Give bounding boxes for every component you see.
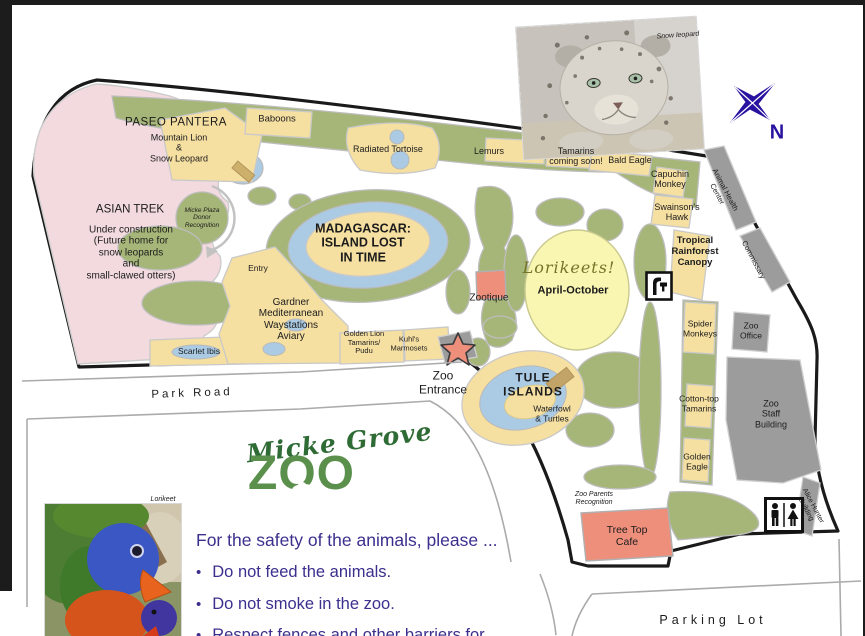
- safety-rule-item: •Respect fences and other barriers for: [196, 626, 666, 636]
- lorikeets-aviary-area: [525, 230, 629, 350]
- drinking-fountain-icon: [645, 271, 673, 301]
- safety-rule-item: •Do not smoke in the zoo.: [196, 595, 666, 615]
- lorikeet-art: [45, 504, 181, 636]
- zoo-map-page: N Micke Grove ZOO PASEO PANTERAMountain …: [0, 0, 865, 636]
- safety-rule-text: Do not feed the animals.: [212, 563, 391, 582]
- safety-rules-list: •Do not feed the animals.•Do not smoke i…: [196, 563, 666, 636]
- logo-animal-silhouettes-icon: [276, 464, 396, 514]
- safety-rule-item: •Do not feed the animals.: [196, 563, 666, 583]
- bullet-dot-icon: •: [196, 563, 201, 583]
- lorikeet-photo: [45, 504, 181, 636]
- safety-legend: For the safety of the animals, please ..…: [196, 530, 666, 636]
- safety-rule-text: Respect fences and other barriers for: [212, 626, 484, 636]
- bullet-dot-icon: •: [196, 626, 201, 636]
- legend-heading: For the safety of the animals, please ..…: [196, 530, 666, 551]
- snow-leopard-photo: [516, 17, 704, 160]
- zoo-logo: Micke Grove ZOO: [232, 424, 422, 514]
- window-frame-left: [0, 0, 12, 591]
- window-frame-top: [0, 0, 865, 5]
- bullet-dot-icon: •: [196, 595, 201, 615]
- snow-leopard-art: [516, 17, 704, 160]
- compass-north-label: N: [770, 122, 784, 145]
- safety-rule-text: Do not smoke in the zoo.: [212, 595, 395, 614]
- restroom-icon: [764, 497, 804, 533]
